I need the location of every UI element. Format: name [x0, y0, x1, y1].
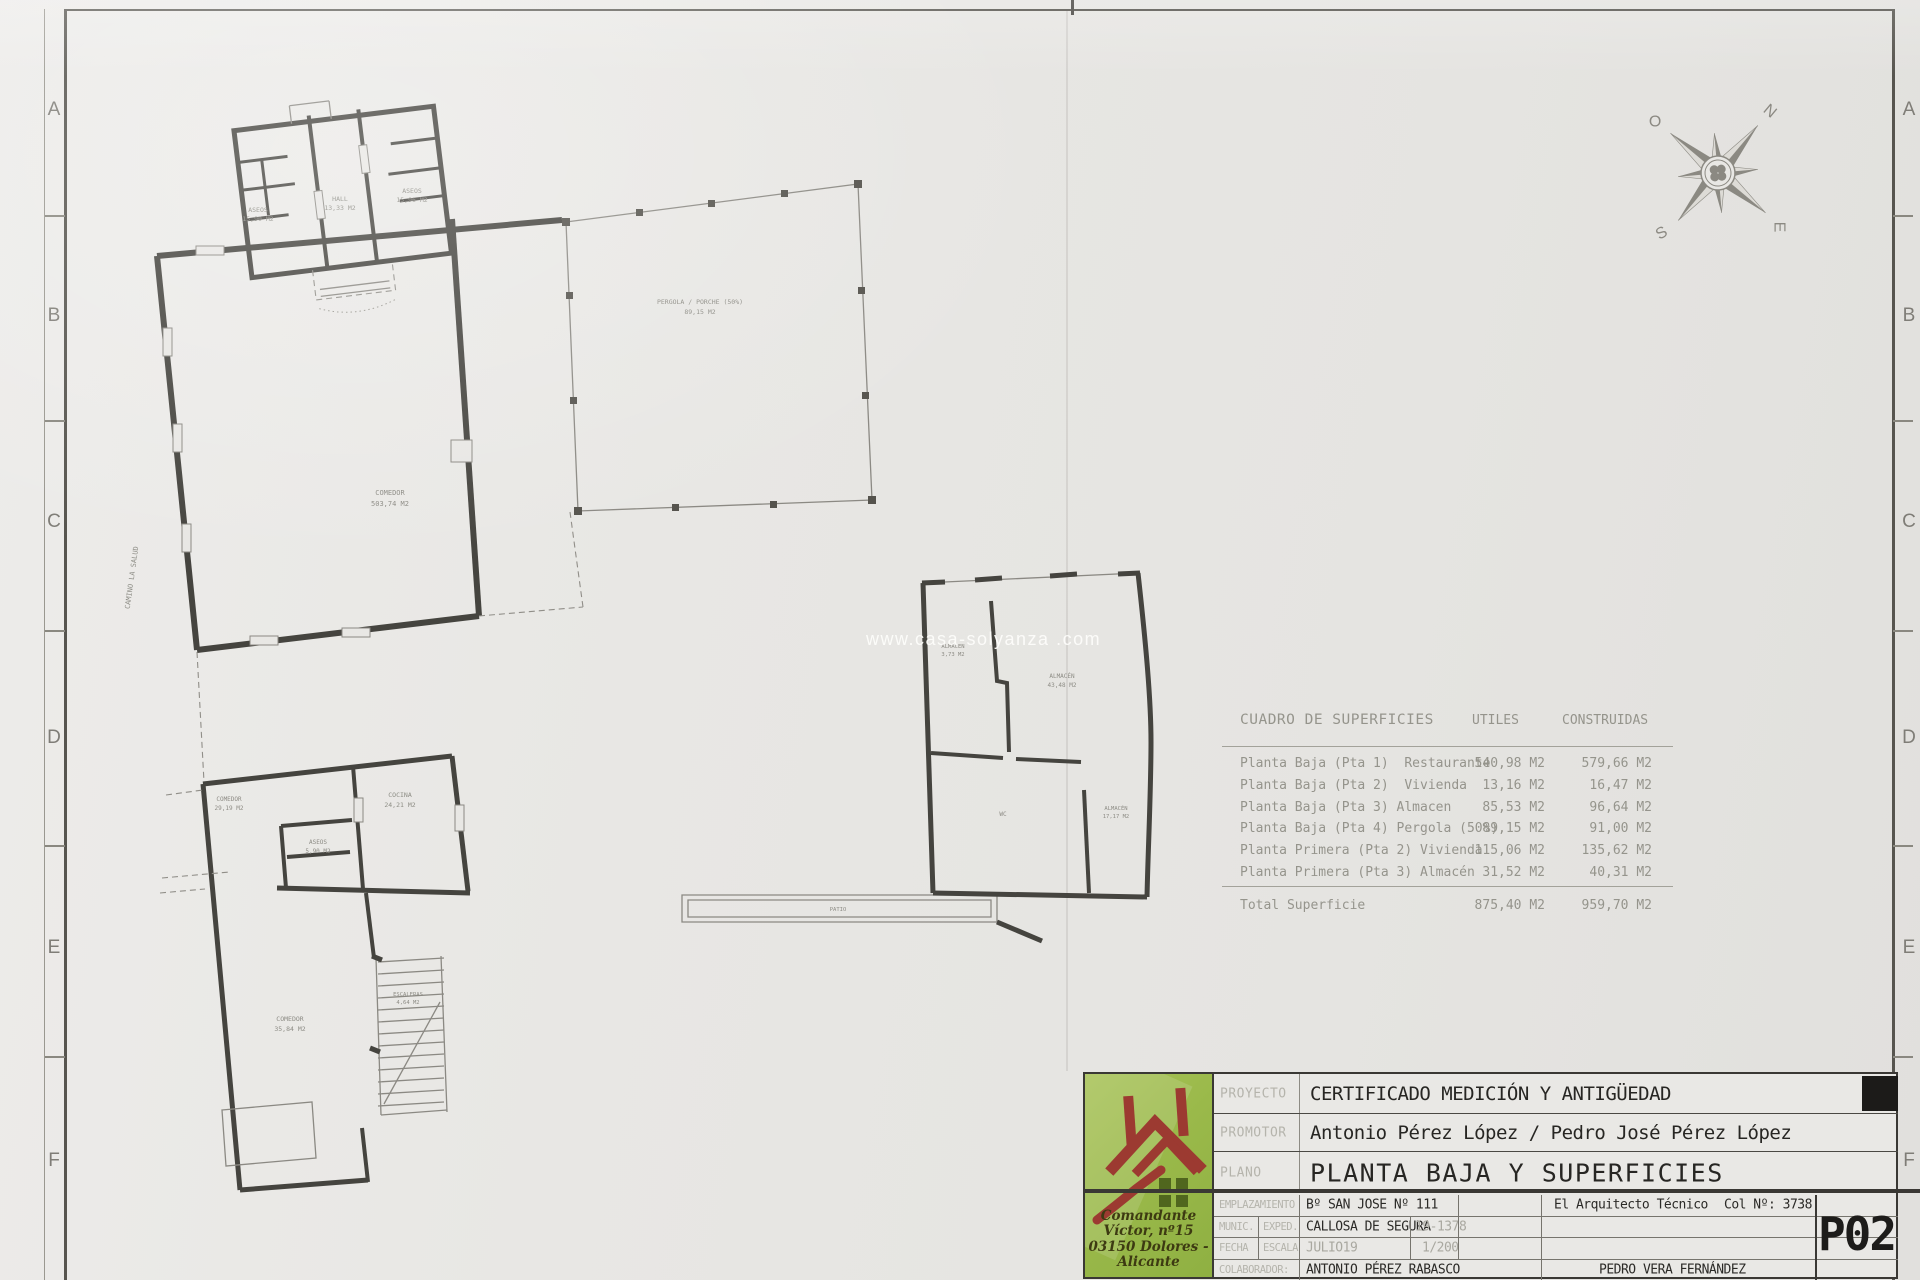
building-lower [160, 756, 470, 1190]
row-plano: PLANO PLANTA BAJA Y SUPERFICIES [1214, 1152, 1898, 1193]
room-label: PATIO [830, 907, 847, 913]
row-proyecto: PROYECTO CERTIFICADO MEDICIÓN Y ANTIGÜED… [1214, 1074, 1898, 1114]
table-row: Planta Primera (Pta 2) Vivienda 115,06 M… [1222, 843, 1682, 865]
cell-divider [1541, 1238, 1542, 1259]
room-label: ASEOS [309, 839, 327, 846]
room-area: 15,96 M2 [396, 196, 427, 204]
table-row: Planta Baja (Pta 2) Vivienda 13,16 M2 16… [1222, 778, 1682, 800]
row-promotor: PROMOTOR Antonio Pérez López / Pedro Jos… [1214, 1114, 1898, 1152]
escala-label: ESCALA [1263, 1242, 1298, 1254]
proyecto-label: PROYECTO [1220, 1086, 1287, 1101]
cell-divider [1541, 1217, 1542, 1238]
room-area: 5,90 M2 [305, 848, 331, 855]
building-almacen [922, 573, 1151, 897]
cell-divider [1299, 1152, 1300, 1193]
cell-divider [1299, 1195, 1300, 1216]
row-municipio: MUNIC. EXPED. CALLOSA DE SEGURA 19-1378 [1214, 1217, 1898, 1239]
cell-divider [1258, 1217, 1259, 1238]
municipio-value: CALLOSA DE SEGURA [1306, 1219, 1431, 1234]
escala-value: 1/200 [1422, 1241, 1459, 1256]
proyecto-value: CERTIFICADO MEDICIÓN Y ANTIGÜEDAD [1310, 1083, 1671, 1105]
cell-divider [1299, 1074, 1300, 1113]
room-area: 3,73 M2 [941, 652, 964, 658]
colaborador-value: ANTONIO PÉREZ RABASCO [1306, 1263, 1460, 1278]
title-block: Comandante Víctor, nº15 03150 Dolores - … [1083, 1072, 1898, 1279]
compass-rose-icon: N O S E [1590, 46, 1845, 301]
room-area: 4,64 M2 [396, 1000, 419, 1006]
address-line2: 03150 Dolores - Alicante [1085, 1240, 1212, 1271]
room-label: COCINA [388, 791, 412, 799]
room-area: 503,74 M2 [371, 500, 409, 508]
cell-divider [1458, 1238, 1459, 1259]
cell-divider [1299, 1238, 1300, 1259]
room-label: ASEOS [248, 206, 268, 214]
row-emplazamiento: EMPLAZAMIENTO Bº SAN JOSE Nº 111 El Arqu… [1214, 1195, 1898, 1217]
pergola [562, 180, 876, 515]
cell-divider [1410, 1238, 1411, 1259]
room-label: ALMACÉN [1049, 672, 1075, 680]
munic-label: MUNIC. [1219, 1221, 1254, 1233]
room-label: COMEDOR [375, 489, 405, 497]
table-title: CUADRO DE SUPERFICIES [1240, 712, 1434, 728]
table-total-row: Total Superficie 875,40 M2 959,70 M2 [1222, 898, 1682, 920]
arquitecto-text: El Arquitecto Técnico [1554, 1198, 1708, 1213]
cell-divider [1299, 1217, 1300, 1238]
room-area: 17,17 M2 [1103, 814, 1130, 820]
street-label: CAMINO LA SALUD [124, 546, 141, 610]
company-address: Comandante Víctor, nº15 03150 Dolores - … [1085, 1209, 1212, 1271]
promotor-label: PROMOTOR [1220, 1125, 1287, 1140]
room-label: COMEDOR [276, 1015, 303, 1023]
plan-code: P02 [1818, 1207, 1895, 1261]
address-line1: Comandante Víctor, nº15 [1085, 1209, 1212, 1240]
table-row: Planta Baja (Pta 1) Restaurante 540,98 M… [1222, 756, 1682, 778]
room-label: COMEDOR [216, 796, 242, 803]
corner-black-box [1862, 1076, 1898, 1111]
room-area: 43,48 M2 [1048, 682, 1077, 689]
row-fecha-escala: FECHA ESCALA JULIO19 1/200 [1214, 1238, 1898, 1260]
plano-value: PLANTA BAJA Y SUPERFICIES [1310, 1158, 1724, 1187]
table-row: Planta Baja (Pta 4) Pergola (50%) 89,15 … [1222, 821, 1682, 843]
room-label: ALMACÉN [1104, 804, 1127, 812]
emplazamiento-value: Bº SAN JOSE Nº 111 [1306, 1198, 1438, 1213]
cell-divider [1458, 1217, 1459, 1238]
colegiado-number: Col Nº: 3738 [1724, 1198, 1812, 1213]
compass-north-label: N [1760, 101, 1780, 121]
drawing-sheet: ABCDEF ABCDEF ASEOS 15,90 M2 HALL 13,33 … [0, 0, 1920, 1280]
fecha-value: JULIO19 [1306, 1241, 1357, 1256]
tecnico-name: PEDRO VERA FERNÁNDEZ [1599, 1263, 1746, 1278]
room-label: PERGOLA / PORCHE (50%) [657, 298, 743, 306]
table-row: Planta Baja (Pta 3) Almacen 85,53 M2 96,… [1222, 800, 1682, 822]
room-label: ASEOS [402, 187, 422, 195]
room-area: 15,90 M2 [242, 215, 273, 223]
room-area: 24,21 M2 [384, 801, 415, 809]
emplazamiento-label: EMPLAZAMIENTO [1219, 1199, 1295, 1211]
room-label: WC [999, 811, 1007, 818]
cell-divider [1541, 1260, 1542, 1280]
room-area: 29,19 M2 [215, 805, 244, 812]
column-header-construidas: CONSTRUIDAS [1562, 713, 1648, 728]
colaborador-label: COLABORADOR: [1219, 1264, 1289, 1276]
titleblock-lower-grid: EMPLAZAMIENTO Bº SAN JOSE Nº 111 El Arqu… [1214, 1195, 1898, 1280]
plan-code-cell: P02 [1815, 1195, 1896, 1280]
room-area: 89,15 M2 [684, 308, 715, 316]
room-area: 13,33 M2 [324, 204, 355, 212]
compass-south-label: S [1653, 223, 1671, 243]
room-label: ESCALERAS [393, 992, 423, 998]
exped-label: EXPED. [1263, 1221, 1298, 1233]
company-logo-panel: Comandante Víctor, nº15 03150 Dolores - … [1085, 1074, 1214, 1277]
cell-divider [1258, 1238, 1259, 1259]
titleblock-thick-divider [1083, 1189, 1920, 1193]
patio-strip [682, 895, 1042, 941]
promotor-value: Antonio Pérez López / Pedro José Pérez L… [1310, 1122, 1791, 1144]
building-comedor-main [157, 219, 583, 782]
cell-divider [1458, 1195, 1459, 1216]
table-rows: Planta Baja (Pta 1) Restaurante 540,98 M… [1222, 756, 1682, 887]
watermark: www.casa-solyanza .com [866, 629, 1101, 650]
row-colaborador: COLABORADOR: ANTONIO PÉREZ RABASCO PEDRO… [1214, 1260, 1898, 1280]
cell-divider [1410, 1217, 1411, 1238]
table-divider [1222, 886, 1673, 887]
table-row: Planta Primera (Pta 3) Almacén 31,52 M2 … [1222, 865, 1682, 887]
cell-divider [1299, 1260, 1300, 1280]
room-area: 35,84 M2 [274, 1025, 305, 1033]
compass-east-label: E [1771, 222, 1788, 233]
room-label: HALL [332, 195, 348, 203]
cell-divider [1541, 1195, 1542, 1216]
column-header-utiles: UTILES [1472, 713, 1519, 728]
superficies-table: CUADRO DE SUPERFICIES UTILES CONSTRUIDAS… [1222, 710, 1682, 746]
fecha-label: FECHA [1219, 1242, 1248, 1254]
plano-label: PLANO [1220, 1165, 1262, 1180]
table-divider [1222, 746, 1673, 747]
cell-divider [1299, 1114, 1300, 1151]
compass-west-label: O [1649, 114, 1661, 131]
